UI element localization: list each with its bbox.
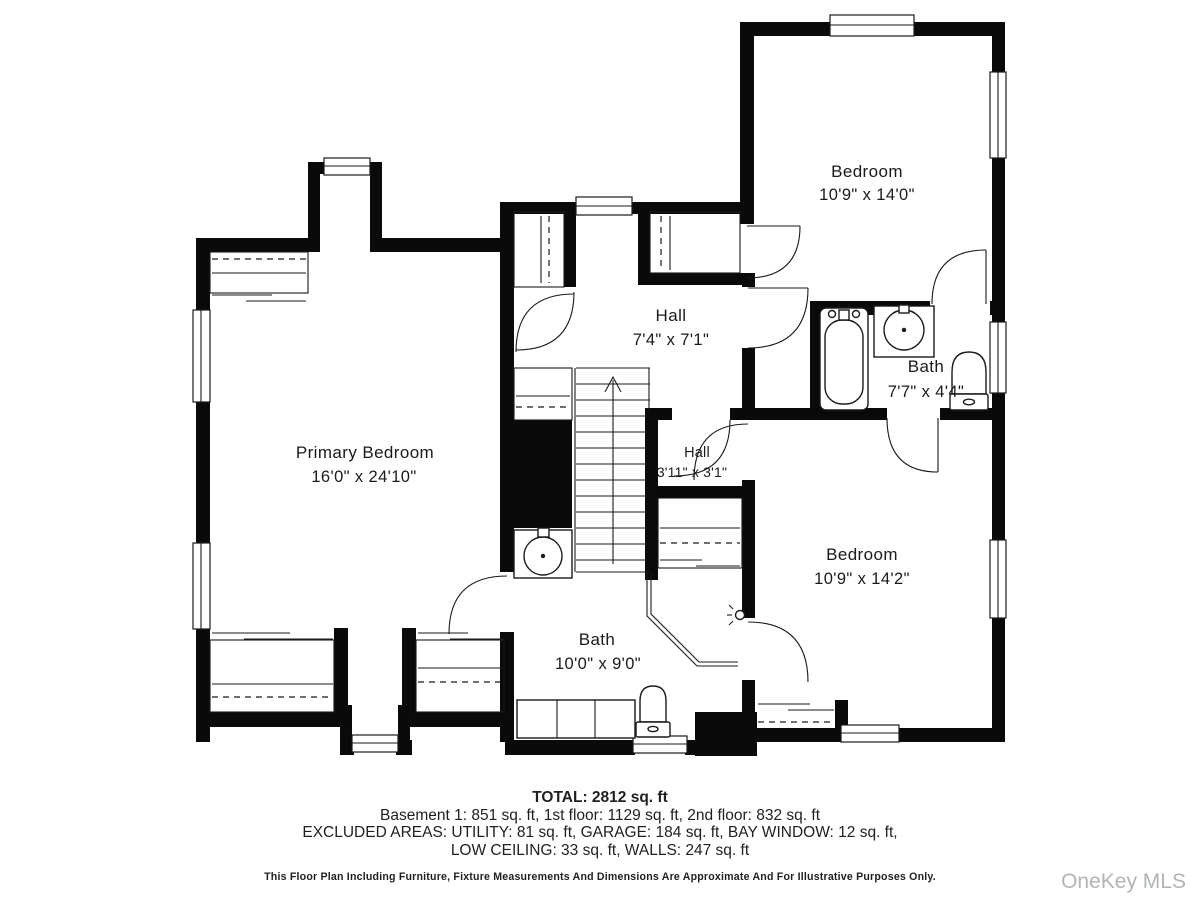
- total-area: TOTAL: 2812 sq. ft: [0, 789, 1200, 807]
- svg-text:10'9" x 14'2": 10'9" x 14'2": [814, 570, 910, 588]
- svg-text:10'0" x 9'0": 10'0" x 9'0": [555, 655, 641, 673]
- door-arc: [932, 250, 986, 304]
- window: [990, 72, 1006, 158]
- sink-icon: [874, 305, 934, 357]
- shower-icon: [647, 570, 745, 666]
- bathtub-icon: [820, 308, 868, 410]
- toilet-icon: [950, 352, 988, 410]
- window: [830, 15, 914, 36]
- window: [193, 310, 210, 402]
- door-arc: [516, 294, 574, 352]
- chimney: [514, 420, 572, 528]
- stairs: [575, 368, 650, 572]
- closet: [514, 212, 564, 287]
- window: [352, 735, 398, 752]
- door-arc: [449, 576, 507, 634]
- svg-text:Bath: Bath: [908, 357, 945, 376]
- room-label-primary-bedroom: Primary Bedroom 16'0" x 24'10": [296, 443, 434, 486]
- door-arc: [887, 418, 938, 472]
- door-arc: [516, 292, 574, 350]
- window: [576, 197, 632, 215]
- closet: [758, 704, 834, 722]
- door-arc: [747, 226, 800, 278]
- toilet-icon: [636, 686, 670, 737]
- door-arc: [748, 622, 808, 682]
- room-label-bedroom-top-right: Bedroom 10'9" x 14'0": [819, 162, 915, 204]
- closet: [514, 368, 572, 420]
- door-arc: [748, 288, 808, 348]
- floor-areas: Basement 1: 851 sq. ft, 1st floor: 1129 …: [0, 807, 1200, 825]
- room-label-bedroom-bottom-right: Bedroom 10'9" x 14'2": [814, 545, 910, 588]
- room-label-bath-bottom: Bath 10'0" x 9'0": [555, 630, 641, 673]
- excluded-areas-line2: LOW CEILING: 33 sq. ft, WALLS: 247 sq. f…: [0, 842, 1200, 860]
- window: [324, 158, 370, 175]
- svg-text:3'11" x 3'1": 3'11" x 3'1": [657, 464, 727, 480]
- svg-text:7'4" x 7'1": 7'4" x 7'1": [633, 331, 710, 349]
- floor-plan: Primary Bedroom 16'0" x 24'10" Bedroom 1…: [0, 0, 1200, 900]
- closet: [416, 633, 504, 712]
- svg-text:Hall: Hall: [684, 445, 710, 461]
- up-arrow-icon: [605, 377, 621, 564]
- area-summary: TOTAL: 2812 sq. ft Basement 1: 851 sq. f…: [0, 789, 1200, 887]
- excluded-areas-line1: EXCLUDED AREAS: UTILITY: 81 sq. ft, GARA…: [0, 824, 1200, 842]
- window: [990, 540, 1006, 618]
- closet: [210, 252, 308, 301]
- svg-text:Bedroom: Bedroom: [831, 162, 903, 181]
- closet: [658, 498, 742, 568]
- room-label-hall: Hall 7'4" x 7'1": [633, 306, 710, 349]
- svg-text:Bedroom: Bedroom: [826, 545, 898, 564]
- vanity-icon: [517, 700, 635, 738]
- svg-text:7'7" x 4'4": 7'7" x 4'4": [888, 383, 965, 401]
- svg-text:10'9" x 14'0": 10'9" x 14'0": [819, 186, 915, 204]
- closet: [650, 212, 740, 273]
- svg-text:16'0" x 24'10": 16'0" x 24'10": [311, 468, 416, 486]
- svg-text:Primary Bedroom: Primary Bedroom: [296, 443, 434, 462]
- sink-icon: [514, 528, 572, 578]
- svg-text:Hall: Hall: [656, 306, 687, 325]
- closet: [210, 633, 334, 712]
- room-label-hall-small: Hall 3'11" x 3'1": [657, 445, 727, 480]
- window: [990, 322, 1006, 393]
- disclaimer: This Floor Plan Including Furniture, Fix…: [0, 869, 1200, 887]
- window: [841, 725, 899, 742]
- window: [193, 543, 210, 629]
- window: [633, 736, 687, 753]
- svg-text:Bath: Bath: [579, 630, 616, 649]
- onekey-mls-watermark: OneKey MLS: [1061, 870, 1186, 894]
